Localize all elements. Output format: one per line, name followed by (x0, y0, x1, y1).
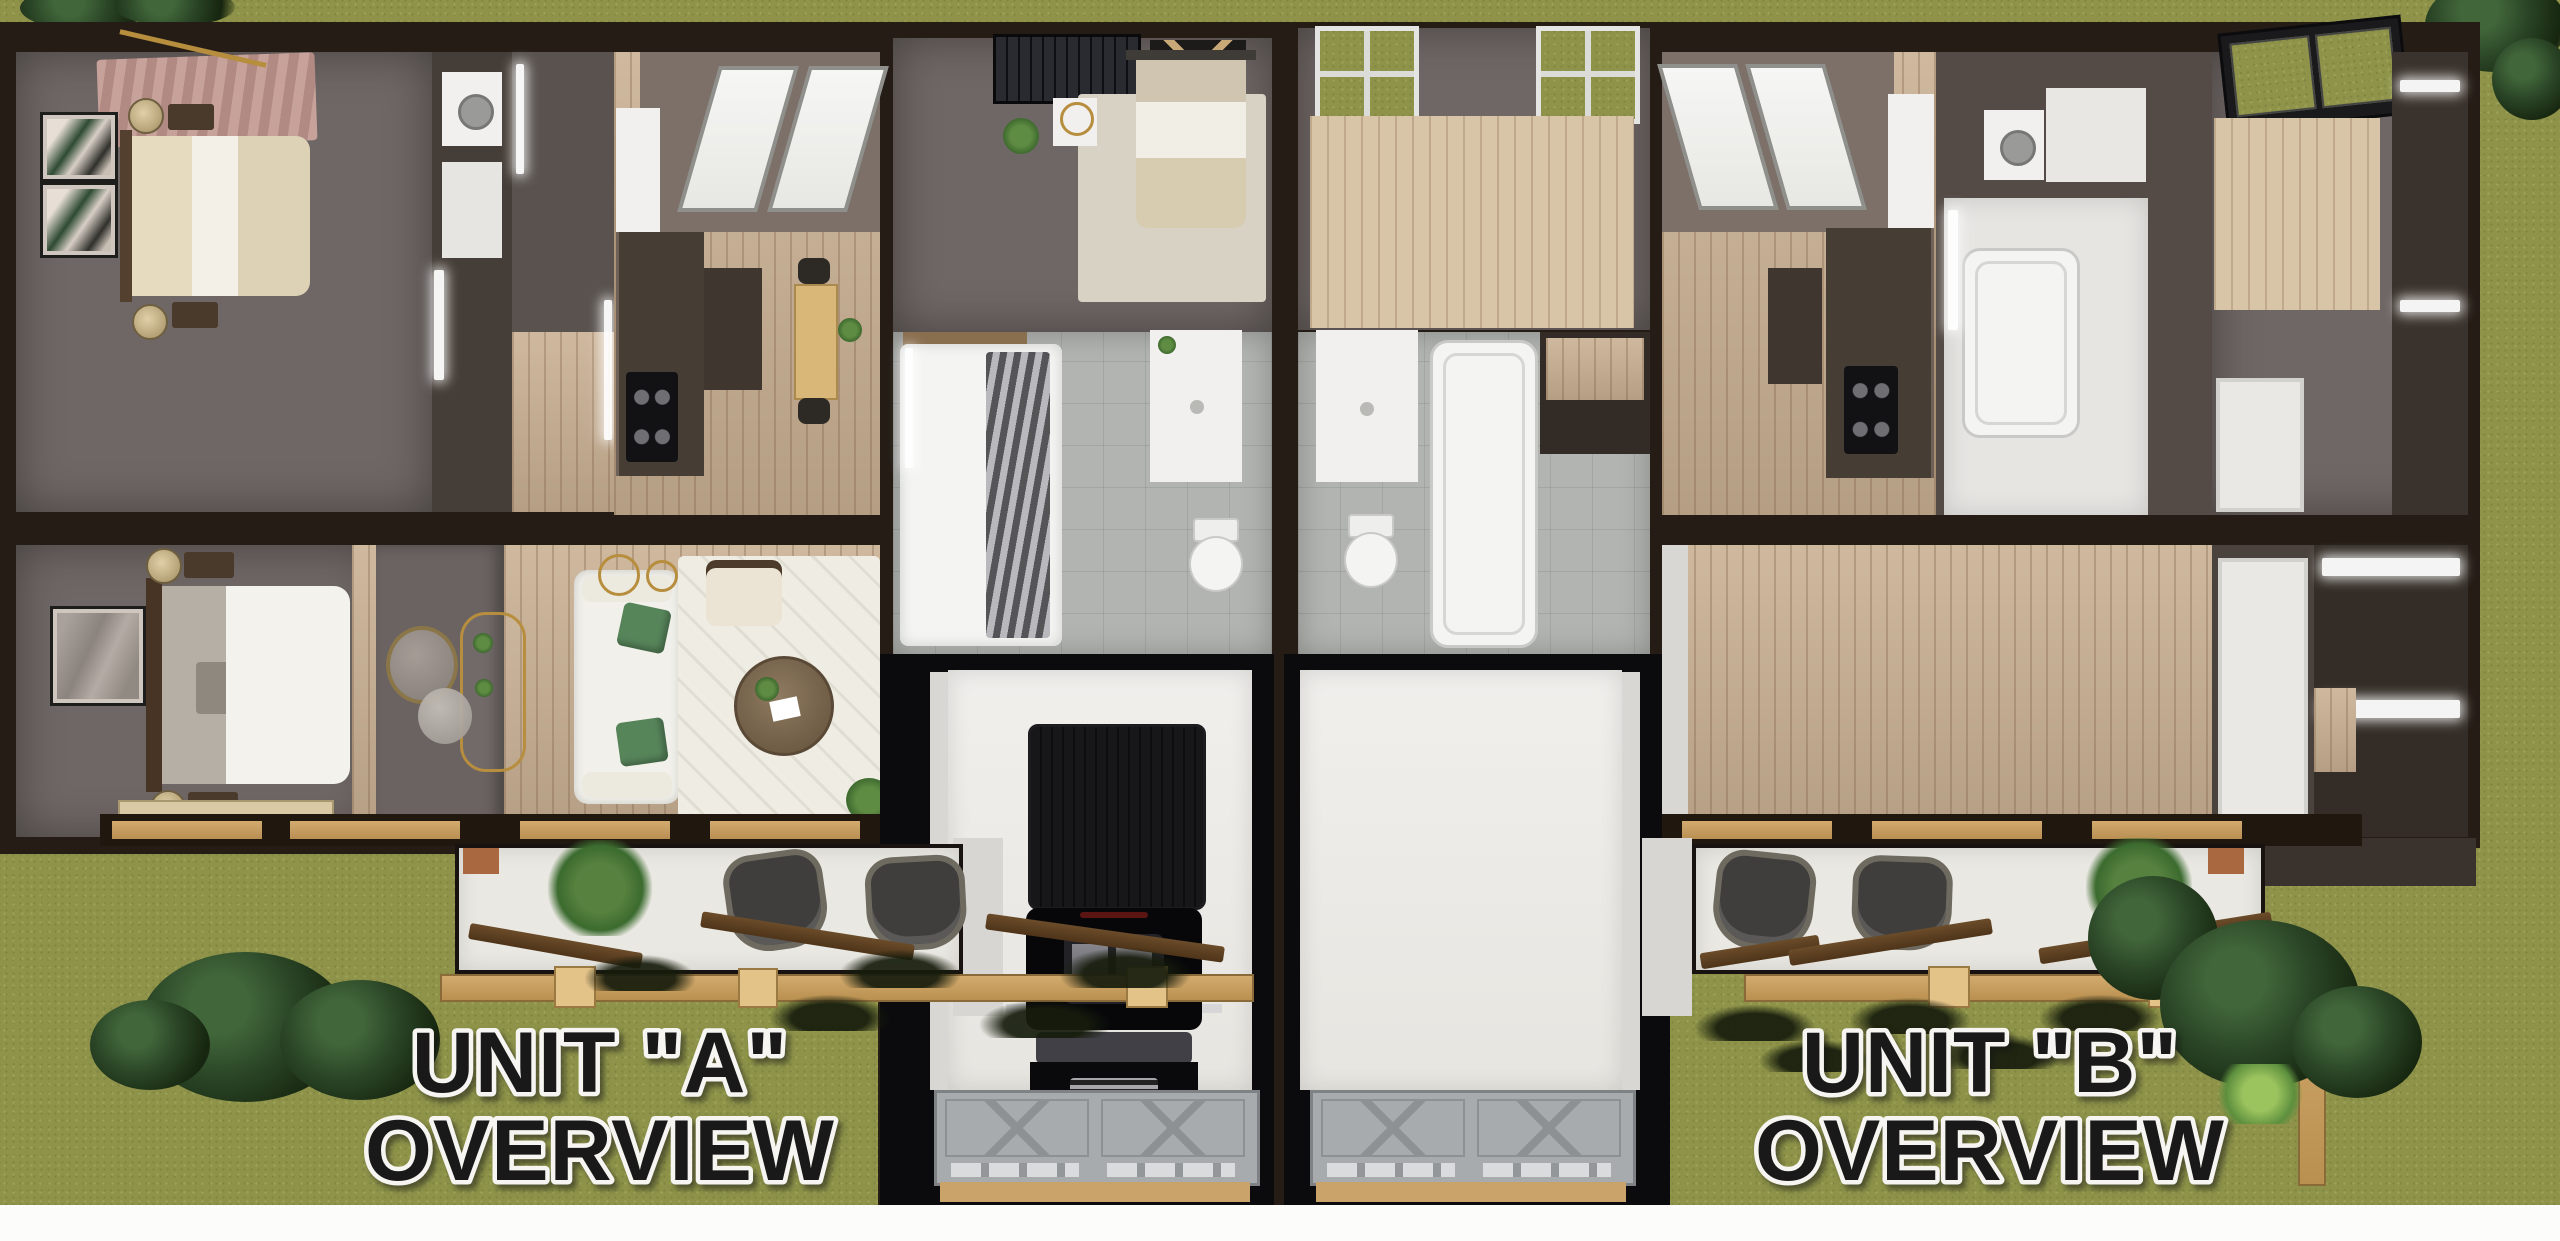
bottom-margin (0, 1205, 2560, 1241)
unit-b-label-line1: UNIT "B" (1802, 1015, 2178, 1111)
unit-b-label-line2: OVERVIEW (1755, 1103, 2225, 1199)
unit-a-label-line2: OVERVIEW (365, 1103, 835, 1199)
duplex-floor-plan-render: UNIT "A" OVERVIEW UNIT "B" OVERVIEW (0, 0, 2560, 1241)
unit-a-label-line1: UNIT "A" (412, 1015, 788, 1111)
label-layer: UNIT "A" OVERVIEW UNIT "B" OVERVIEW (0, 0, 2560, 1241)
